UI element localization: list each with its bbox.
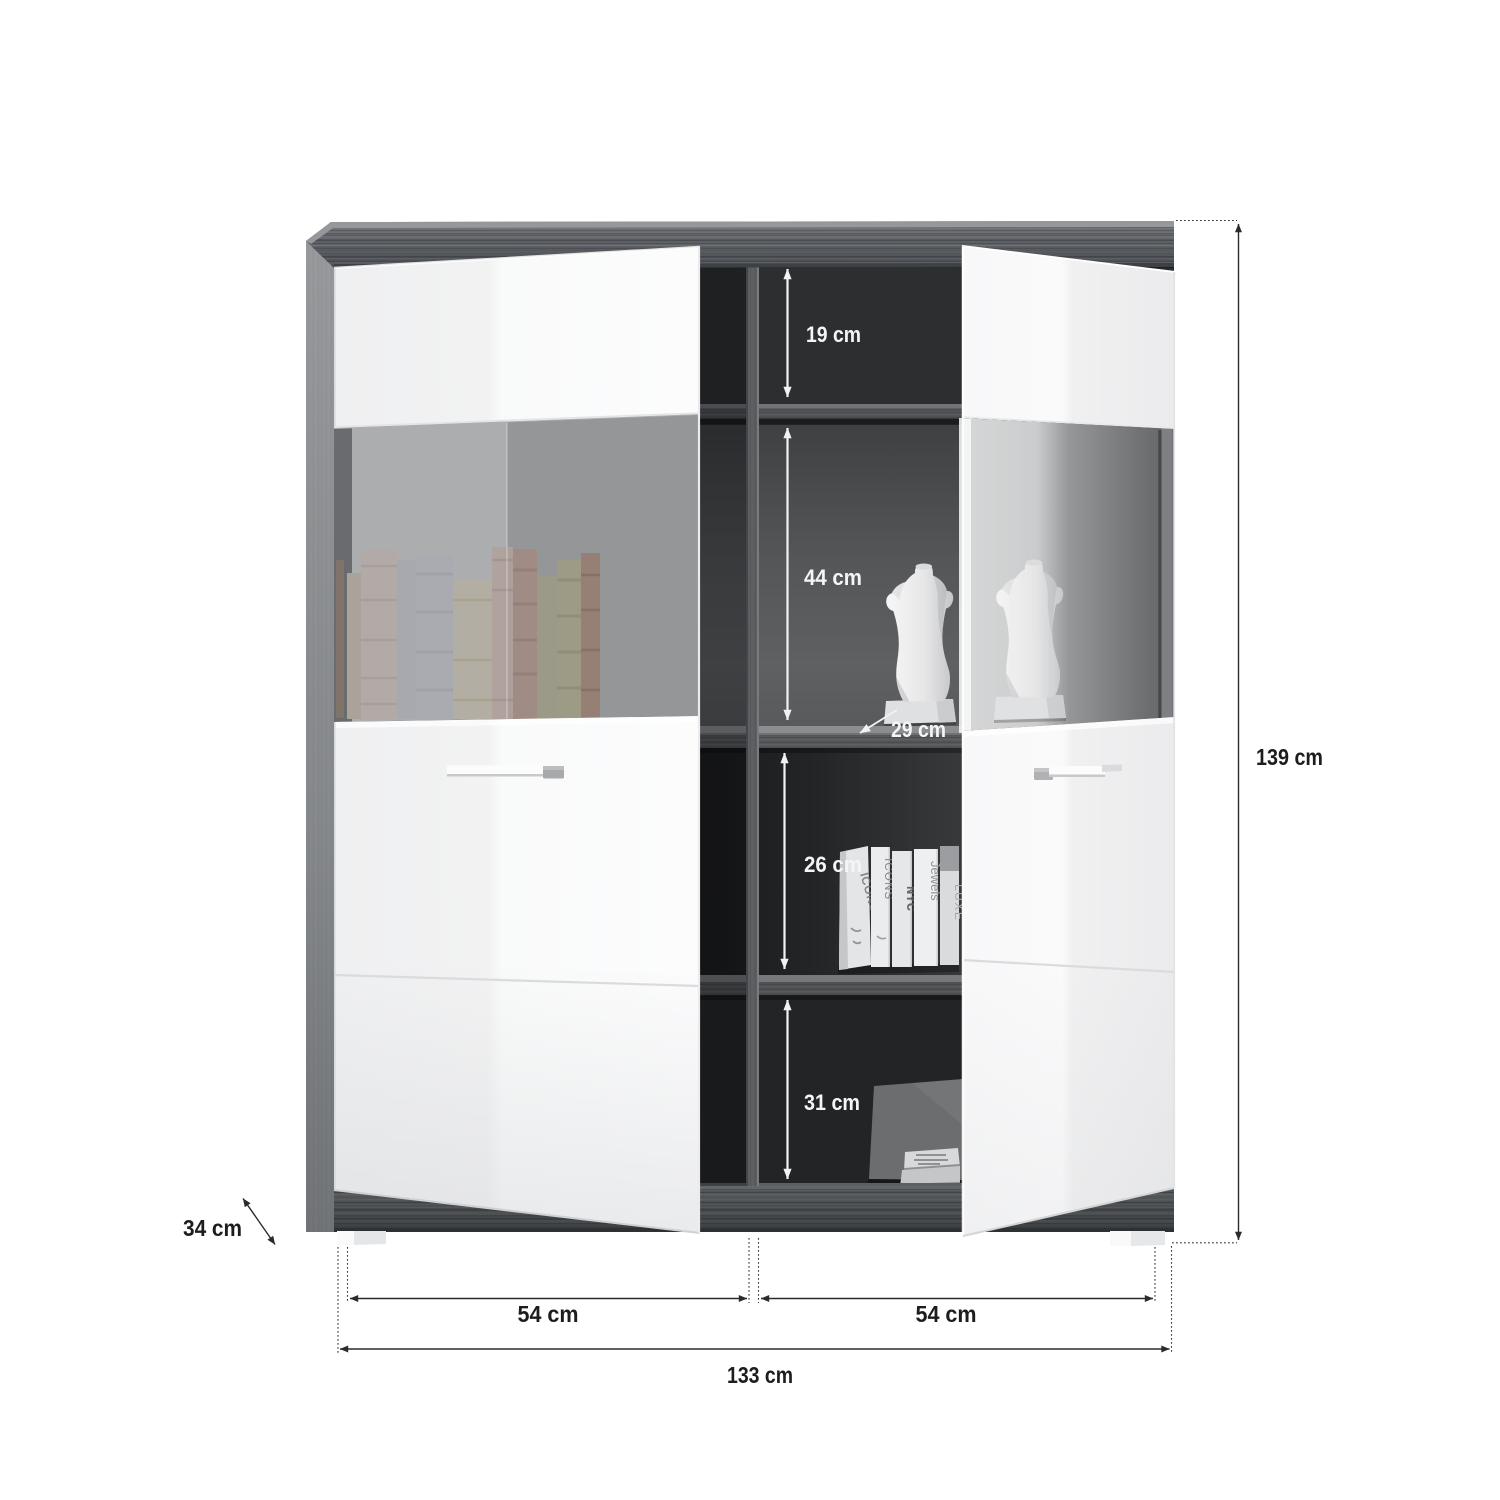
svg-text:133 cm: 133 cm xyxy=(727,1362,793,1388)
svg-text:54 cm: 54 cm xyxy=(518,1301,579,1327)
svg-text:19 cm: 19 cm xyxy=(806,322,861,347)
svg-text:44 cm: 44 cm xyxy=(804,565,862,590)
svg-text:29 cm: 29 cm xyxy=(891,717,946,742)
svg-text:54 cm: 54 cm xyxy=(916,1301,977,1327)
svg-text:31 cm: 31 cm xyxy=(804,1090,860,1115)
svg-text:26 cm: 26 cm xyxy=(804,852,862,877)
svg-text:139 cm: 139 cm xyxy=(1256,744,1323,770)
svg-text:34 cm: 34 cm xyxy=(183,1215,242,1241)
